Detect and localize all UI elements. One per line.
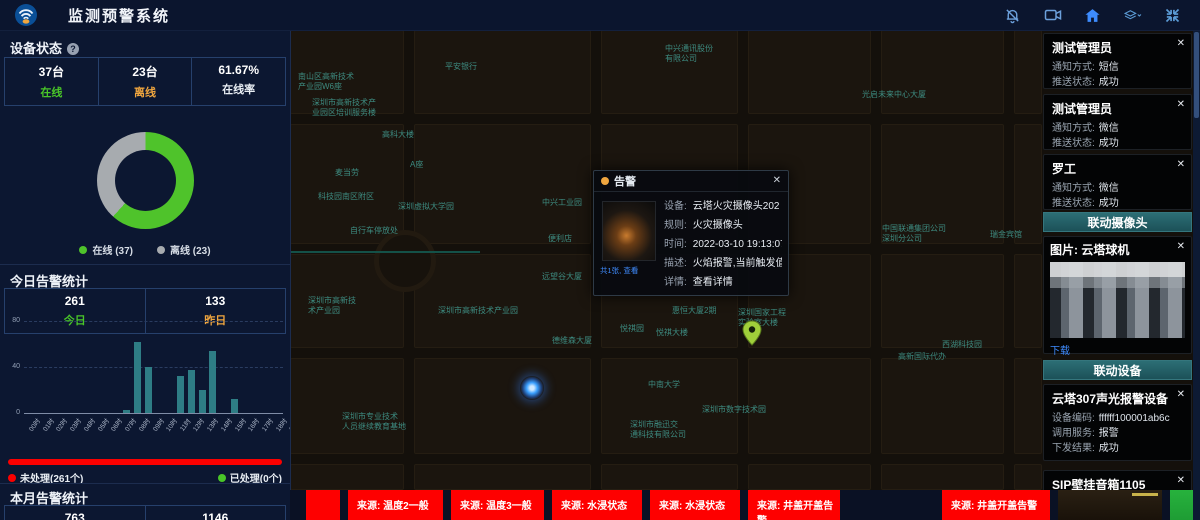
- bar-slot: [56, 321, 67, 413]
- field-value: 成功: [1099, 198, 1119, 209]
- field-value: 成功: [1099, 443, 1119, 454]
- field-label: 下发结果:: [1052, 443, 1095, 454]
- bar-slot: [121, 321, 132, 413]
- stat-value: 1146: [148, 511, 284, 520]
- alert-ticker-item[interactable]: 来源: 水浸状态: [650, 490, 740, 520]
- stat-label: 离线: [101, 84, 190, 100]
- field-label: 规则:: [664, 216, 687, 235]
- linked-camera-header: 联动摄像头: [1043, 212, 1192, 232]
- map-block: [881, 464, 1004, 490]
- fullscreen-icon[interactable]: [1164, 6, 1182, 24]
- bar: [188, 370, 195, 413]
- alert-ticker-item[interactable]: 来源: 温度2一般: [348, 490, 443, 520]
- map-place-label: 深圳市融迅交 通科技有限公司: [630, 420, 686, 440]
- close-icon[interactable]: ✕: [1177, 475, 1185, 486]
- field-label: 详情:: [664, 273, 687, 292]
- legend-label: 离线 (23): [170, 242, 211, 257]
- alert-ticker-bar: 来源: 温度2一般来源: 温度3一般来源: 水浸状态来源: 水浸状态来源: 井盖…: [290, 490, 1200, 520]
- popup-field-row: 设备:云塔火灾摄像头202: [664, 197, 782, 216]
- download-link[interactable]: 下载: [1050, 342, 1185, 357]
- popup-field-row: 时间:2022-03-10 19:13:07: [664, 235, 782, 254]
- app-header: 监测预警系统: [0, 0, 1200, 31]
- alert-popup-fields: 设备:云塔火灾摄像头202规则:火灾摄像头时间:2022-03-10 19:13…: [664, 197, 782, 292]
- field-value: 微信: [1099, 123, 1119, 134]
- field-value: 云塔火灾摄像头202: [693, 197, 780, 216]
- map-place-label: 深圳虚拟大学园: [398, 202, 454, 212]
- map-block: [1014, 358, 1042, 454]
- map-block: [601, 464, 738, 490]
- map-place-label: 深圳市数字技术园: [702, 405, 766, 415]
- bar-slot: [132, 321, 143, 413]
- legend-dot-icon: [157, 246, 165, 254]
- divider: [0, 264, 290, 265]
- bar-slot: [186, 321, 197, 413]
- device-status-stats: 37台在线23台离线61.67%在线率: [4, 57, 286, 106]
- map-place-label: 深圳市专业技术 人员继续教育基地: [342, 412, 406, 432]
- map-place-label: 惠恒大厦2期: [672, 306, 716, 316]
- notification-name: 测试管理员: [1052, 39, 1183, 56]
- map-place-label: 科技园南区附区: [318, 192, 374, 202]
- field-value: 短信: [1099, 62, 1119, 73]
- notification-status-row: 推送状态:成功: [1052, 196, 1183, 211]
- close-icon[interactable]: ✕: [1177, 38, 1185, 49]
- field-value: 2022-03-10 19:13:07: [693, 235, 782, 254]
- video-camera-icon[interactable]: [1044, 6, 1062, 24]
- map-road-highlight: [290, 251, 480, 253]
- map-block: [414, 358, 591, 454]
- month-alarms-stats: 7631146: [4, 505, 286, 520]
- map-place-label: 南山区高新技术 产业园W6座: [298, 72, 354, 92]
- field-value: 成功: [1099, 77, 1119, 88]
- device-card-row: 调用服务:报警: [1052, 426, 1183, 441]
- field-value: 微信: [1099, 183, 1119, 194]
- map-place-label: 麦当劳: [335, 168, 359, 178]
- linked-camera-card: ✕ 图片: 云塔球机 下载: [1043, 236, 1192, 354]
- left-sidebar: 设备状态? 37台在线23台离线61.67%在线率 在线 (37)离线 (23)…: [0, 30, 291, 520]
- linked-device-card: ✕云塔307声光报警设备设备编码:ffffff100001ab6c调用服务:报警…: [1043, 384, 1192, 461]
- ticker-snapshot-dark[interactable]: [1058, 490, 1162, 520]
- map-place-label: 光启未来中心大厦: [862, 90, 926, 100]
- camera-snapshot-image[interactable]: [1050, 262, 1185, 338]
- field-label: 通知方式:: [1052, 123, 1095, 134]
- field-label: 通知方式:: [1052, 62, 1095, 73]
- map-block: [290, 358, 404, 454]
- stat-label: 在线: [7, 84, 96, 100]
- help-icon[interactable]: ?: [67, 43, 79, 55]
- alarm-bell-icon: [601, 177, 609, 185]
- map-roundabout: [374, 230, 436, 292]
- field-value: ffffff100001ab6c: [1099, 413, 1170, 424]
- stat-cell: 1146: [145, 506, 286, 520]
- field-label: 推送状态:: [1052, 77, 1095, 88]
- alert-snapshot-image[interactable]: [602, 201, 656, 261]
- notification-card: ✕罗工通知方式:微信推送状态:成功: [1043, 154, 1192, 210]
- alert-ticker-item[interactable]: 来源: 井盖开盖告警: [942, 490, 1050, 520]
- notification-card: ✕测试管理员通知方式:短信推送状态:成功: [1043, 33, 1192, 89]
- unprocessed-progress-bar: [8, 459, 282, 465]
- bar-slot: [67, 321, 78, 413]
- donut-legend: 在线 (37)离线 (23): [0, 242, 290, 257]
- notification-method-row: 通知方式:微信: [1052, 181, 1183, 196]
- stat-cell: 763: [5, 506, 145, 520]
- home-icon[interactable]: [1084, 6, 1102, 24]
- map-place-label: 深圳市高新技术产 业园区培训服务楼: [312, 98, 376, 118]
- bar: [231, 399, 238, 413]
- bar-slot: [89, 321, 100, 413]
- map-place-label: 远望谷大厦: [542, 272, 582, 282]
- legend-label: 在线 (37): [92, 242, 133, 257]
- field-label: 调用服务:: [1052, 428, 1095, 439]
- legend-item: 在线 (37): [79, 242, 133, 257]
- green-dot-icon: [218, 474, 226, 482]
- hourly-alarm-bar-chart: 80 40 0 00时01时02时03时04时05时06时07时08时09时10…: [8, 318, 285, 458]
- bar: [209, 351, 216, 413]
- device-card-row: 设备编码:ffffff100001ab6c: [1052, 411, 1183, 426]
- alert-popup-title: 告警: [614, 173, 773, 189]
- map-block: [1014, 124, 1042, 244]
- map-place-label: 便利店: [548, 234, 572, 244]
- bar-slot: [24, 321, 35, 413]
- field-label: 设备编码:: [1052, 413, 1095, 424]
- bar-slot: [262, 321, 273, 413]
- bar-slot: [35, 321, 46, 413]
- bar-slot: [110, 321, 121, 413]
- alert-ticker-item[interactable]: 来源: 温度3一般: [451, 490, 544, 520]
- map-place-label: 高新国际代办: [898, 352, 946, 362]
- bar-slot: [100, 321, 111, 413]
- map-place-label: 深圳市高新技 术产业园: [308, 296, 356, 316]
- right-scrollbar[interactable]: [1193, 30, 1200, 520]
- map-block: [1014, 30, 1042, 114]
- bars: [24, 321, 283, 413]
- device-status-title: 设备状态?: [10, 38, 79, 57]
- y-tick-40: 40: [8, 363, 20, 370]
- bar-slot: [154, 321, 165, 413]
- scrollbar-thumb[interactable]: [1194, 32, 1199, 118]
- bar-slot: [143, 321, 154, 413]
- bar-slot: [251, 321, 262, 413]
- map-block: [748, 30, 871, 114]
- map-place-label: 平安银行: [445, 62, 477, 72]
- field-value: 成功: [1099, 138, 1119, 149]
- bar-slot: [272, 321, 283, 413]
- stat-value: 23台: [101, 63, 190, 80]
- field-label: 推送状态:: [1052, 198, 1095, 209]
- map-place-label: 中南大学: [648, 380, 680, 390]
- alert-snapshot-link[interactable]: 共1张, 查看: [600, 265, 660, 276]
- bell-off-icon[interactable]: [1004, 6, 1022, 24]
- alert-popup: 告警 ✕ 共1张, 查看 设备:云塔火灾摄像头202规则:火灾摄像头时间:202…: [593, 170, 789, 296]
- map-pin-icon[interactable]: [742, 320, 762, 351]
- legend-item: 离线 (23): [157, 242, 211, 257]
- bar-slot: [46, 321, 57, 413]
- map-block: [414, 124, 591, 244]
- map-place-label: 中兴通讯股份 有限公司: [665, 44, 713, 64]
- map-place-label: 中兴工业园: [542, 198, 582, 208]
- device-card-row: 下发结果:成功: [1052, 441, 1183, 456]
- map-place-label: 西湖科技园: [942, 340, 982, 350]
- map-block: [881, 30, 1004, 114]
- alert-ticker-item[interactable]: [306, 490, 340, 520]
- stat-value: 61.67%: [194, 63, 283, 77]
- popup-field-row: 规则:火灾摄像头: [664, 216, 782, 235]
- ticker-gap: [848, 490, 934, 520]
- stat-value: 261: [7, 294, 143, 308]
- notification-name: 罗工: [1052, 160, 1183, 177]
- stat-cell: 37台在线: [5, 58, 98, 105]
- bar-slot: [240, 321, 251, 413]
- map-block: [748, 358, 871, 454]
- field-value: 报警: [1099, 428, 1119, 439]
- notification-status-row: 推送状态:成功: [1052, 75, 1183, 90]
- map-block: [881, 254, 1004, 348]
- alert-ticker-item[interactable]: 来源: 水浸状态: [552, 490, 642, 520]
- popup-field-row: 详情:查看详情: [664, 273, 782, 292]
- device-status-donut-chart: [97, 132, 194, 229]
- field-value: 火灾摄像头: [693, 216, 743, 235]
- alert-popup-header: 告警 ✕: [594, 171, 788, 192]
- map-place-label: 德维森大厦: [552, 336, 592, 346]
- detail-link[interactable]: 查看详情: [693, 273, 733, 292]
- field-label: 设备:: [664, 197, 687, 216]
- map-place-label: 深圳市高新技术产业园: [438, 306, 518, 316]
- bar: [134, 342, 141, 413]
- page-title: 监测预警系统: [68, 5, 170, 26]
- stat-value: 37台: [7, 63, 96, 80]
- bar-slot: [218, 321, 229, 413]
- map-block: [881, 358, 1004, 454]
- map-place-label: A座: [410, 160, 423, 170]
- map-block: [414, 464, 591, 490]
- stat-label: 在线率: [194, 81, 283, 97]
- bar: [177, 376, 184, 413]
- field-label: 推送状态:: [1052, 138, 1095, 149]
- map-block: [601, 30, 738, 114]
- map-place-label: 中国联通集团公司 深圳分公司: [882, 224, 946, 244]
- divider: [0, 483, 290, 484]
- bar-slot: [78, 321, 89, 413]
- alert-ticker-item[interactable]: 来源: 井盖开盖告警: [748, 490, 840, 520]
- notification-card: ✕测试管理员通知方式:微信推送状态:成功: [1043, 94, 1192, 150]
- close-icon[interactable]: ✕: [1177, 99, 1185, 110]
- map-block: [748, 464, 871, 490]
- app-logo-icon: [14, 3, 38, 27]
- map-block: [414, 30, 591, 114]
- bar-slot: [197, 321, 208, 413]
- red-dot-icon: [8, 474, 16, 482]
- field-label: 时间:: [664, 235, 687, 254]
- popup-field-row: 描述:火焰报警,当前触发值为...: [664, 254, 782, 273]
- y-tick-0: 0: [8, 409, 20, 416]
- right-sidebar: ✕测试管理员通知方式:短信推送状态:成功✕测试管理员通知方式:微信推送状态:成功…: [1043, 30, 1192, 520]
- stat-cell: 23台离线: [98, 58, 192, 105]
- notification-name: 测试管理员: [1052, 100, 1183, 117]
- map-block: [1014, 254, 1042, 348]
- header-toolbar: [1004, 6, 1182, 24]
- bar: [199, 390, 206, 413]
- bar: [145, 367, 152, 413]
- map-place-label: 悦祺园: [620, 324, 644, 334]
- layers-icon[interactable]: [1124, 6, 1142, 24]
- map-place-label: 自行车停放处: [350, 226, 398, 236]
- bar-slot: [229, 321, 240, 413]
- map-block: [290, 464, 404, 490]
- legend-dot-icon: [79, 246, 87, 254]
- bar: [123, 410, 130, 413]
- bar-slot: [175, 321, 186, 413]
- map-block: [414, 254, 591, 348]
- y-tick-80: 80: [8, 317, 20, 324]
- field-value: 火焰报警,当前触发值为...: [693, 254, 782, 273]
- map-place-label: 高科大楼: [382, 130, 414, 140]
- close-icon[interactable]: ✕: [773, 176, 781, 186]
- field-label: 通知方式:: [1052, 183, 1095, 194]
- stat-value: 763: [7, 511, 143, 520]
- close-icon[interactable]: ✕: [1177, 389, 1185, 400]
- notification-status-row: 推送状态:成功: [1052, 136, 1183, 151]
- close-icon[interactable]: ✕: [1177, 241, 1185, 252]
- map-place-label: 悦祺大楼: [656, 328, 688, 338]
- close-icon[interactable]: ✕: [1177, 159, 1185, 170]
- notification-method-row: 通知方式:微信: [1052, 121, 1183, 136]
- map-device-dot[interactable]: [520, 376, 544, 400]
- notification-method-row: 通知方式:短信: [1052, 60, 1183, 75]
- x-axis-labels: 00时01时02时03时04时05时06时07时08时09时10时11时12时1…: [24, 417, 283, 447]
- camera-card-title: 图片: 云塔球机: [1050, 241, 1185, 258]
- stat-cell: 61.67%在线率: [191, 58, 285, 105]
- bar-slot: [164, 321, 175, 413]
- map-block: [1014, 464, 1042, 490]
- field-label: 描述:: [664, 254, 687, 273]
- stat-value: 133: [148, 294, 284, 308]
- map-place-label: 瑞金宾馆: [990, 230, 1022, 240]
- device-card-name: 云塔307声光报警设备: [1052, 390, 1183, 407]
- bar-slot: [208, 321, 219, 413]
- linked-devices-header: 联动设备: [1043, 360, 1192, 380]
